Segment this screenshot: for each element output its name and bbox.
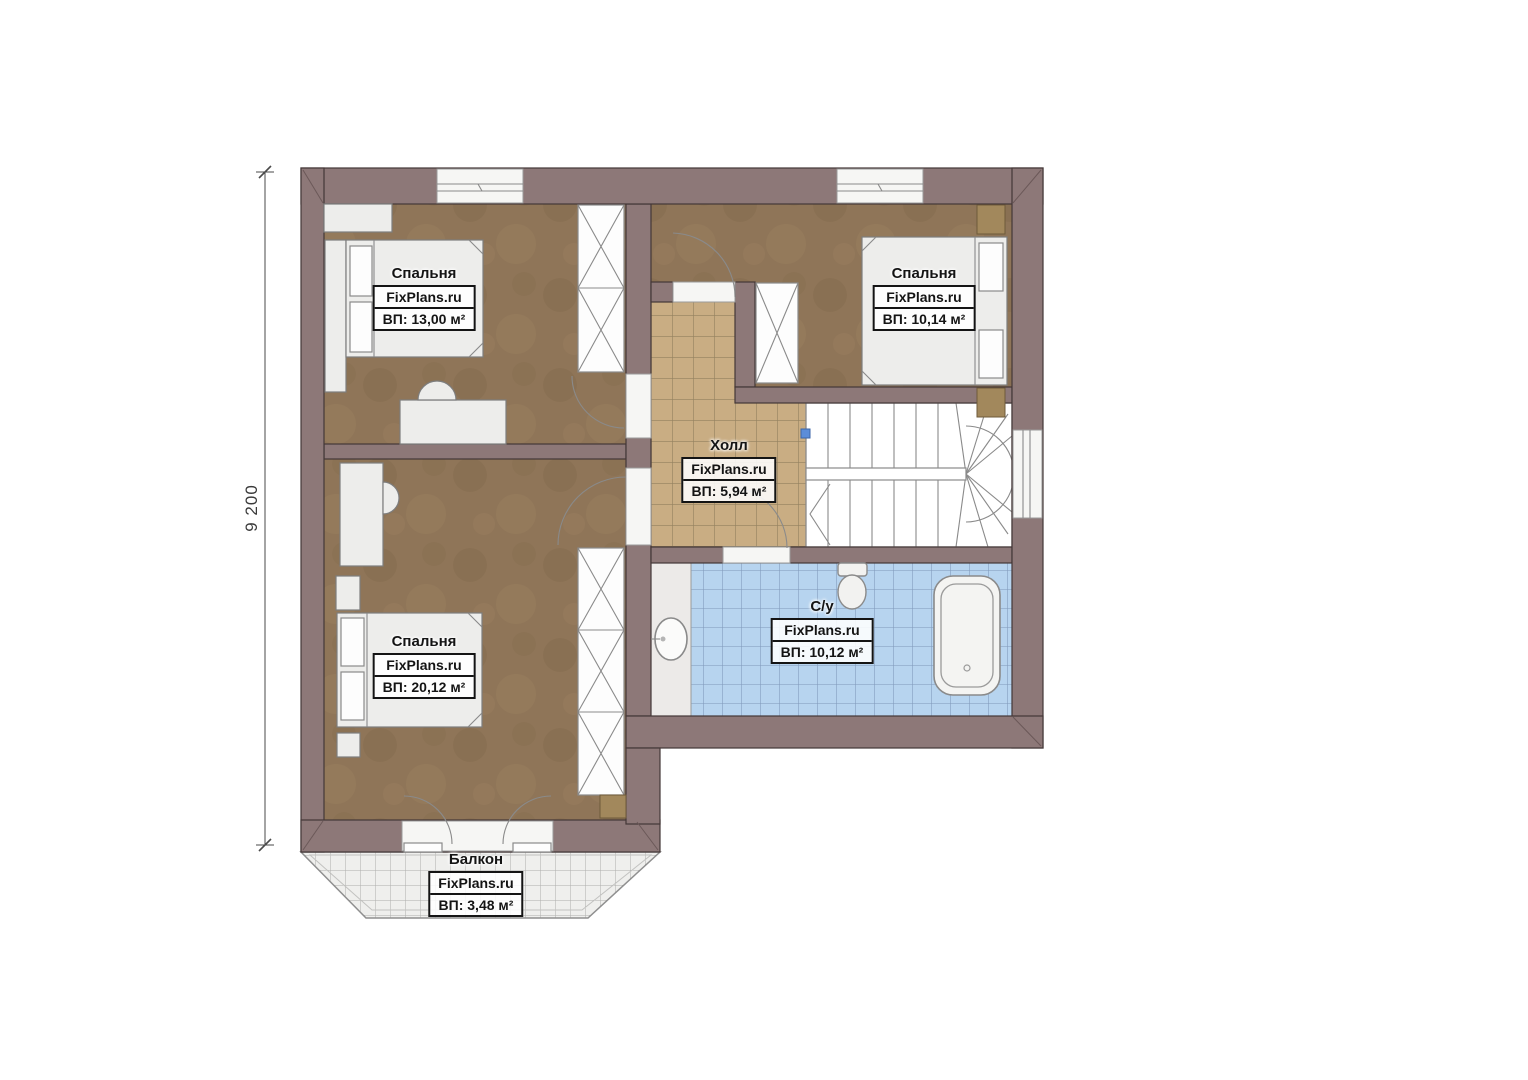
anchor-marker-icon bbox=[801, 429, 810, 438]
watermark: FixPlans.ru bbox=[683, 459, 774, 479]
room-label-bedroom-top-right: Спальня FixPlans.ru ВП: 10,14 м² bbox=[873, 265, 976, 331]
watermark: FixPlans.ru bbox=[875, 287, 974, 307]
room-name: Холл bbox=[710, 437, 748, 454]
bathtub-icon bbox=[934, 576, 1000, 695]
nightstand-icon bbox=[977, 205, 1005, 234]
watermark: FixPlans.ru bbox=[773, 620, 872, 640]
room-area: ВП: 20,12 м² bbox=[375, 675, 474, 697]
room-label-bedroom-bottom-left: Спальня FixPlans.ru ВП: 20,12 м² bbox=[373, 633, 476, 699]
room-area: ВП: 10,14 м² bbox=[875, 307, 974, 329]
room-name: Спальня bbox=[892, 265, 957, 282]
room-label-bathroom: С/у FixPlans.ru ВП: 10,12 м² bbox=[771, 598, 874, 664]
wardrobe-icon-top-left bbox=[578, 205, 624, 372]
window-right-stairs bbox=[1013, 430, 1042, 518]
wardrobe-icon-hall bbox=[756, 283, 798, 383]
watermark: FixPlans.ru bbox=[375, 287, 474, 307]
room-area: ВП: 10,12 м² bbox=[773, 640, 872, 662]
room-area: ВП: 5,94 м² bbox=[683, 479, 774, 501]
room-label-balcony: Балкон FixPlans.ru ВП: 3,48 м² bbox=[428, 851, 523, 917]
room-area: ВП: 3,48 м² bbox=[430, 893, 521, 915]
watermark: FixPlans.ru bbox=[430, 873, 521, 893]
nightstand-icon bbox=[977, 388, 1005, 417]
floor-plan-canvas: 9 200 Спальня FixPlans.ru ВП: 13,00 м² С… bbox=[0, 0, 1528, 1080]
room-name: Спальня bbox=[392, 633, 457, 650]
staircase bbox=[801, 403, 1014, 547]
shelf-icon bbox=[600, 795, 626, 818]
room-name: Балкон bbox=[449, 851, 503, 868]
room-info-box: FixPlans.ru ВП: 10,14 м² bbox=[873, 285, 976, 331]
room-label-hall: Холл FixPlans.ru ВП: 5,94 м² bbox=[681, 437, 776, 503]
room-label-bedroom-top-left: Спальня FixPlans.ru ВП: 13,00 м² bbox=[373, 265, 476, 331]
watermark: FixPlans.ru bbox=[375, 655, 474, 675]
room-info-box: FixPlans.ru ВП: 13,00 м² bbox=[373, 285, 476, 331]
room-info-box: FixPlans.ru ВП: 3,48 м² bbox=[428, 871, 523, 917]
window-top-right bbox=[837, 169, 923, 203]
floor-plan-drawing bbox=[0, 0, 1528, 1080]
room-name: С/у bbox=[810, 598, 833, 615]
wardrobe-icon-bottom-left bbox=[578, 548, 624, 795]
room-info-box: FixPlans.ru ВП: 10,12 м² bbox=[771, 618, 874, 664]
room-info-box: FixPlans.ru ВП: 20,12 м² bbox=[373, 653, 476, 699]
room-info-box: FixPlans.ru ВП: 5,94 м² bbox=[681, 457, 776, 503]
dimension-label: 9 200 bbox=[242, 484, 262, 532]
room-area: ВП: 13,00 м² bbox=[375, 307, 474, 329]
room-name: Спальня bbox=[392, 265, 457, 282]
window-top-left bbox=[437, 169, 523, 203]
